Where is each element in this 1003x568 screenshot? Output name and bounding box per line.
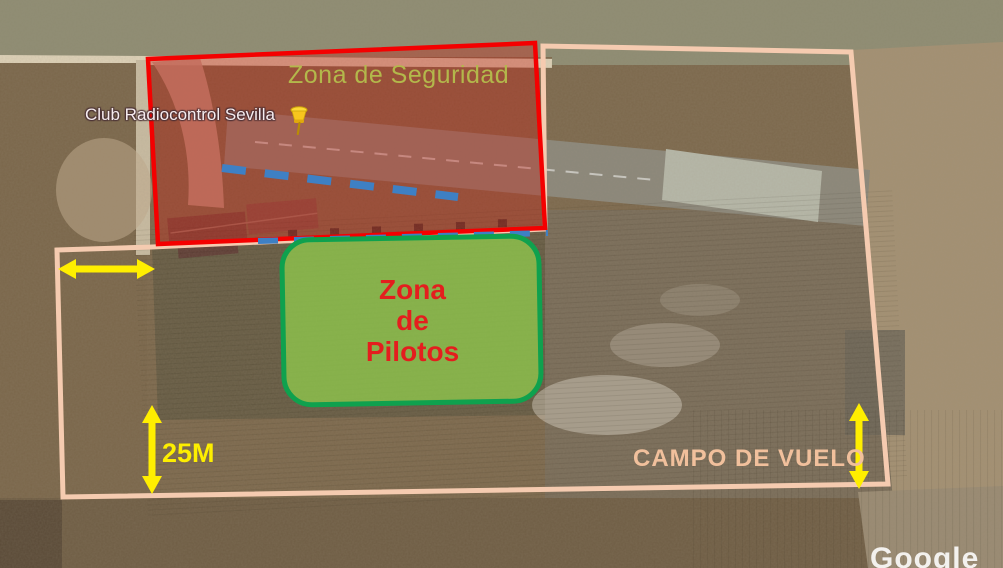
placemark-label: Club Radiocontrol Sevilla bbox=[85, 105, 275, 125]
zona-pilotos-label: Zona de Pilotos bbox=[285, 274, 540, 367]
distance-measurement-label: 25M bbox=[162, 438, 215, 469]
campo-de-vuelo-label: CAMPO DE VUELO bbox=[633, 445, 866, 473]
map-canvas: Zona de Seguridad Club Radiocontrol Sevi… bbox=[0, 0, 1003, 568]
zona-seguridad-label: Zona de Seguridad bbox=[288, 61, 509, 90]
placemark-pin-icon bbox=[288, 106, 314, 138]
google-watermark-text: Google Ea bbox=[870, 542, 1003, 568]
google-watermark: Google Ea bbox=[870, 542, 1003, 568]
